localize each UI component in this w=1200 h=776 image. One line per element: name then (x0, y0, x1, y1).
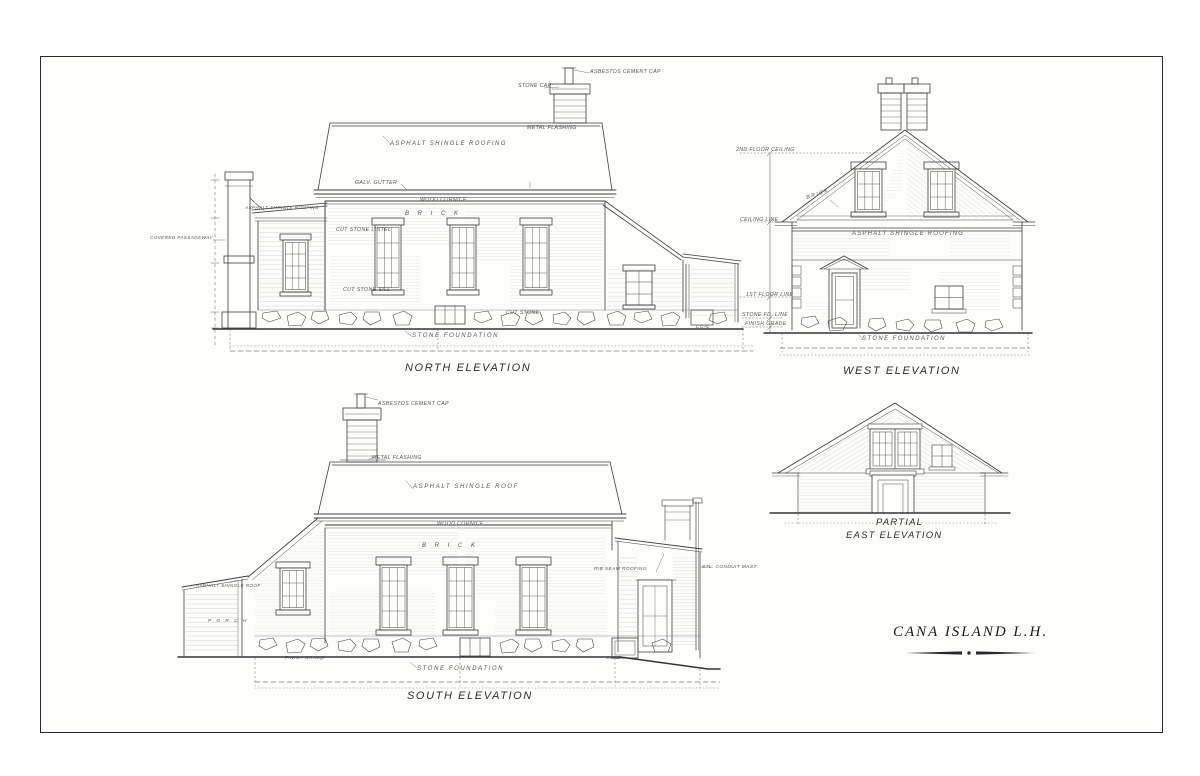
drawing-sheet: NORTH ELEVATION WEST ELEVATION SOUTH ELE… (0, 0, 1200, 776)
south-roof-label: ASPHALT SHINGLE ROOF (413, 484, 519, 490)
rear-stack (662, 500, 693, 540)
east-elevation-caption-line1: PARTIAL (876, 518, 923, 528)
attic-window (866, 424, 924, 474)
south-elevation-caption: SOUTH ELEVATION (407, 691, 533, 702)
sheet-title: CANA ISLAND L.H. (893, 624, 1048, 641)
level-label-2nd-floor-ceiling: 2ND FLOOR CEILING (736, 148, 795, 153)
gable-windows (851, 162, 959, 217)
north-vent-cap-label: ASBESTOS CEMENT CAP (590, 70, 661, 75)
west-elevation-caption: WEST ELEVATION (843, 366, 961, 377)
level-label-ceiling-line: CEILING LINE (740, 218, 779, 223)
left-wing (252, 203, 327, 310)
south-vent-cap-label: ASBESTOS CEMENT CAP (378, 402, 449, 407)
north-metal-flashing-label: METAL FLASHING (527, 126, 577, 131)
north-elevation-drawing (155, 60, 755, 380)
kitchen-wing (615, 538, 702, 658)
entry-door (870, 471, 916, 513)
north-sill-label: CUT STONE SILL (343, 288, 391, 293)
north-stone-cap-label: STONE CAP (518, 84, 551, 89)
north-roof-label: ASPHALT SHINGLE ROOFING (390, 141, 507, 147)
small-window (932, 286, 966, 313)
north-gutter-label: GALV. GUTTER (355, 181, 397, 186)
north-elevation-caption: NORTH ELEVATION (405, 363, 531, 374)
west-foundation-label: STONE FOUNDATION (862, 336, 946, 342)
gable-roof (775, 130, 1035, 226)
conduit-mast (693, 498, 712, 650)
south-brick-label: B R I C K (422, 543, 479, 549)
south-porch-label: P O R C H (208, 620, 248, 625)
south-cornice-label: WOOD CORNICE (437, 522, 484, 527)
foundation (258, 306, 738, 326)
level-label-finish-grade: FINISH GRADE (745, 322, 787, 327)
north-porch-roof-label: ASPHALT SHINGLE ROOFING (245, 206, 319, 211)
east-elevation-caption-line2: EAST ELEVATION (846, 531, 942, 541)
south-grade-label: FINISH GRADE (285, 657, 324, 662)
chimney (544, 68, 590, 123)
twin-chimneys (878, 78, 930, 130)
dimension-line (211, 174, 219, 348)
west-elevation-drawing (700, 70, 1035, 390)
north-lintel-label: CUT STONE LINTEL (336, 228, 391, 233)
north-passage-label: COVERED PASSAGEWAY (150, 236, 213, 241)
level-label-stone-fd-line: STONE FD. LINE (742, 313, 788, 318)
south-foundation-label: STONE FOUNDATION (417, 666, 504, 672)
west-roof-label: ASPHALT SHINGLE ROOFING (852, 231, 964, 237)
north-coal-label: COAL (696, 325, 710, 330)
north-brick-label: B R I C K (405, 211, 462, 217)
kitchen-wing (603, 201, 683, 312)
left-lower-wing (255, 531, 325, 636)
south-rib-roof-label: RIB SEAM ROOFING (594, 568, 647, 573)
level-label-1st-floor-line: 1ST FLOOR LINE (746, 293, 793, 298)
south-coal-label: COAL (606, 656, 620, 661)
south-mast-label: STL. CONDUIT MAST (702, 566, 757, 571)
south-porch-roof-label: ASPHALT SHINGLE ROOF (196, 584, 261, 589)
window-row (372, 218, 552, 295)
north-cornice-label: WOOD CORNICE (420, 198, 467, 203)
side-window (929, 445, 955, 470)
title-divider (905, 648, 1035, 658)
main-roof (314, 123, 616, 198)
south-flashing-label: METAL FLASHING (372, 456, 422, 461)
north-foundation-label: STONE FOUNDATION (412, 333, 499, 339)
tower-passage (213, 172, 264, 328)
window-row (376, 557, 551, 635)
north-cut-stone-label: CUT STONE (506, 311, 539, 316)
